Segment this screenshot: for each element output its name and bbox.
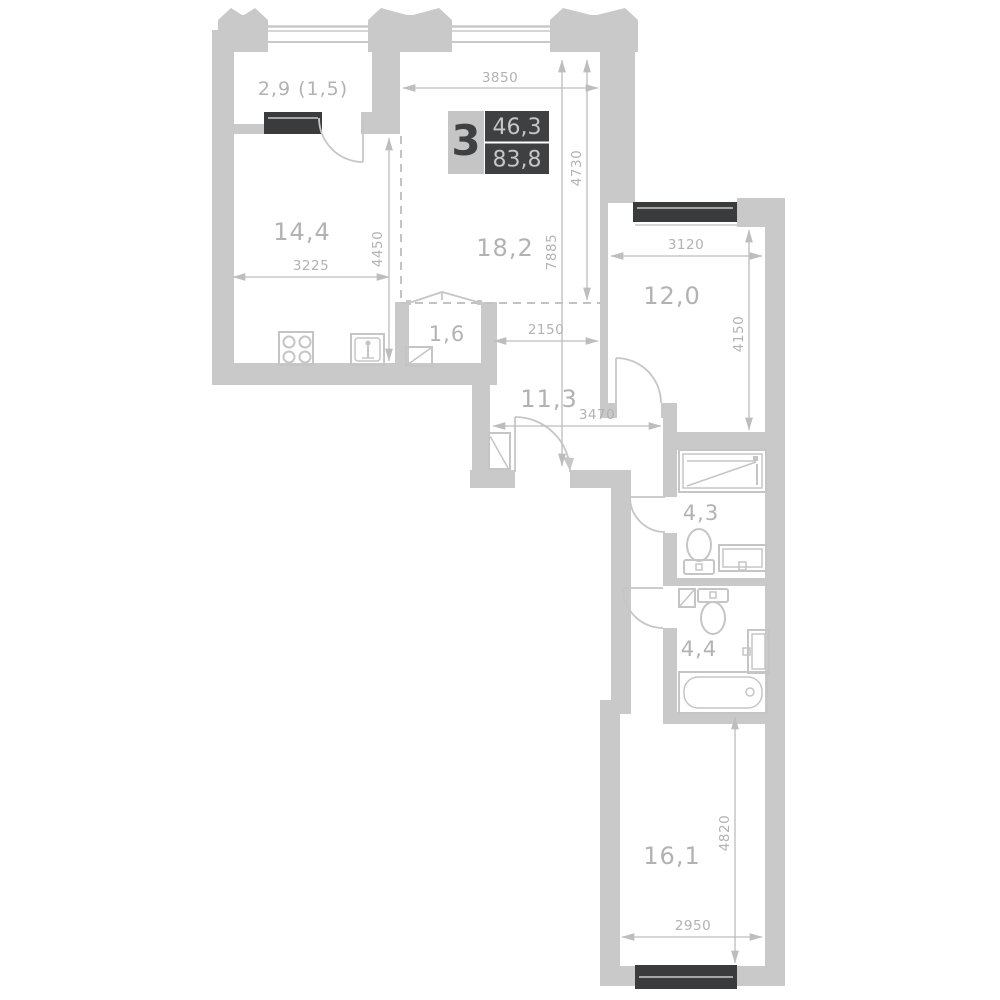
room-label-living: 18,2 <box>476 234 533 262</box>
bedroom2-window <box>635 965 737 989</box>
room-label-kitchen: 14,4 <box>273 218 330 246</box>
floor-plan: 3850 4730 7885 3225 4450 2150 3120 4150 <box>0 0 1000 1000</box>
dim-text-2950: 2950 <box>675 918 711 934</box>
type-badge: 3 46,3 83,8 <box>448 111 549 174</box>
entrance-arrow-icon <box>563 457 574 471</box>
dimension-3120: 3120 <box>611 237 762 256</box>
wall-balcony-right <box>372 52 400 134</box>
dimension-4450: 4450 <box>370 138 389 361</box>
stove-icon <box>279 332 313 365</box>
facade-pier-right <box>550 8 638 52</box>
bedroom1-window <box>633 202 737 225</box>
floor-plan-page: 3850 4730 7885 3225 4450 2150 3120 4150 <box>0 0 1000 1000</box>
dim-text-3850: 3850 <box>482 70 518 86</box>
facade-pier-middle <box>368 8 452 52</box>
wall-wardrobe-right <box>481 302 497 363</box>
bathroom1-door <box>630 497 665 532</box>
wall-hallway-left <box>472 385 490 472</box>
room-label-wardrobe: 1,6 <box>429 322 465 346</box>
badge-area-top: 46,3 <box>493 115 542 140</box>
room-label-bedroom1: 12,0 <box>643 282 700 310</box>
badge-area-bottom: 83,8 <box>493 148 542 173</box>
balcony-door-window <box>264 112 322 134</box>
wall-bathroom2-left-lower <box>663 628 677 714</box>
dim-text-4150: 4150 <box>731 316 747 352</box>
wall-corridor-left <box>611 488 631 714</box>
dim-text-3120: 3120 <box>668 237 704 253</box>
dim-text-4730: 4730 <box>569 150 585 186</box>
wall-bedroom2-left <box>600 700 620 986</box>
balcony-door <box>319 118 363 162</box>
bedroom1-door <box>616 358 661 403</box>
dimension-2950: 2950 <box>622 918 762 937</box>
dim-text-2150: 2150 <box>528 322 564 338</box>
dim-text-4820: 4820 <box>717 815 733 851</box>
entrance-door <box>515 417 574 472</box>
dimension-3850: 3850 <box>403 70 598 88</box>
room-label-bathroom2: 4,4 <box>681 637 717 661</box>
wall-entry-left <box>470 470 515 488</box>
shower-tray-icon <box>679 450 766 492</box>
wall-left-outer <box>212 30 234 385</box>
dim-text-4450: 4450 <box>370 231 386 267</box>
wall-living-bedroom-partition <box>600 203 608 403</box>
wall-living-right <box>600 52 635 203</box>
badge-rooms-count: 3 <box>451 116 480 165</box>
dimension-4150: 4150 <box>731 230 749 430</box>
wall-bathroom1-top <box>663 432 767 450</box>
dim-text-3470: 3470 <box>579 407 615 423</box>
dimension-4730: 4730 <box>569 60 587 300</box>
washbasin-bathroom1-icon <box>719 545 766 571</box>
dimension-2150: 2150 <box>494 322 598 341</box>
dim-text-7885: 7885 <box>544 234 560 270</box>
wall-entry-right <box>570 470 631 488</box>
wall-bathroom1-left-upper <box>663 450 677 497</box>
room-label-hallway: 11,3 <box>520 385 577 413</box>
room-label-bathroom1: 4,3 <box>683 501 719 525</box>
toilet-bathroom1-icon <box>684 529 714 574</box>
wall-bath-divider <box>663 578 767 586</box>
vent-shaft-hallway-icon <box>489 433 510 469</box>
wall-kitchen-bottom <box>212 363 497 385</box>
dimension-3225: 3225 <box>233 258 389 277</box>
room-label-balcony: 2,9 (1,5) <box>258 78 348 100</box>
wall-balcony-sill <box>232 124 265 134</box>
bathtub-icon <box>679 672 767 713</box>
dimension-4820: 4820 <box>717 717 735 963</box>
room-label-bedroom2: 16,1 <box>643 842 700 870</box>
vent-shaft-bathroom2-icon <box>679 589 695 607</box>
dim-text-3225: 3225 <box>293 258 329 274</box>
toilet-bathroom2-icon <box>698 589 728 634</box>
washbasin-bathroom2-icon <box>743 630 769 673</box>
wall-bathroom1-left-lower <box>663 533 677 578</box>
wall-topright-pier <box>737 198 785 227</box>
kitchen-sink-icon <box>351 334 384 365</box>
wall-right-outer <box>765 203 785 986</box>
